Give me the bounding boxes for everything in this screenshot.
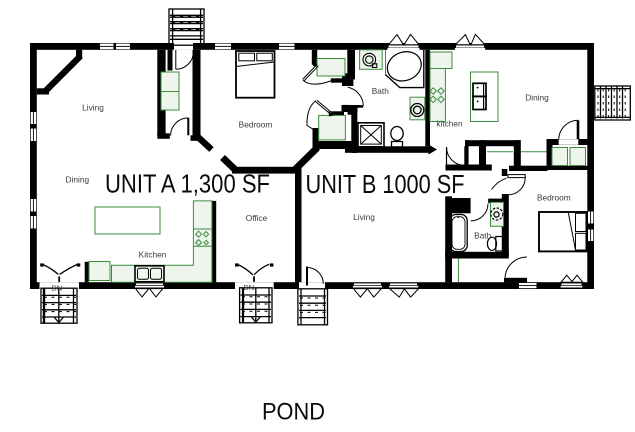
svg-text:Bath: Bath: [372, 86, 389, 96]
svg-text:Dining: Dining: [66, 175, 90, 185]
svg-text:Dining: Dining: [525, 93, 549, 103]
svg-text:Bath: Bath: [474, 230, 491, 240]
svg-text:Office: Office: [246, 213, 268, 223]
svg-text:Living: Living: [353, 212, 375, 222]
svg-text:UNIT B 1000 SF: UNIT B 1000 SF: [306, 171, 465, 199]
svg-text:UNIT A 1,300 SF: UNIT A 1,300 SF: [105, 171, 270, 199]
svg-text:DN: DN: [52, 283, 63, 292]
svg-text:Kitchen: Kitchen: [139, 250, 167, 260]
svg-text:POND: POND: [262, 399, 325, 426]
svg-text:Living: Living: [82, 103, 104, 113]
svg-text:Bedroom: Bedroom: [537, 192, 571, 202]
svg-text:Bedroom: Bedroom: [239, 119, 273, 129]
svg-text:kitchen: kitchen: [436, 119, 463, 129]
svg-text:DN: DN: [243, 283, 254, 292]
